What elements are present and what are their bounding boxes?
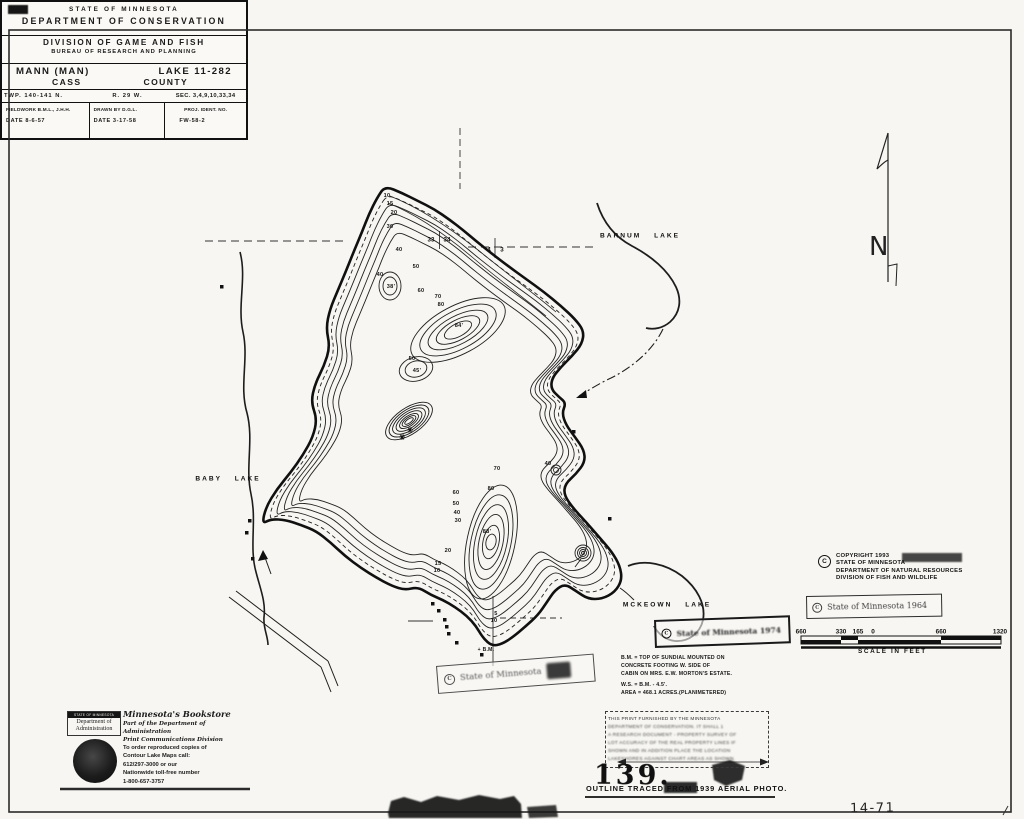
spring-symbols [399, 427, 413, 440]
structure-symbols [220, 285, 612, 657]
bookstore-line: 1-800-657-3757 [123, 778, 253, 786]
note-line: W.S. = B.M. - 4.5'. [621, 682, 767, 690]
stamp-text: State of Minnesota 1964 [827, 601, 927, 612]
stamp-1964: C State of Minnesota 1964 [806, 594, 942, 619]
map-sheet: BARNUM LAKEBABY LAKEMCKEOWN LAKE 333443 … [0, 0, 1024, 819]
copyright-icon: C [818, 555, 831, 568]
outline-traced-note: OUTLINE TRACED FROM 1939 AERIAL PHOTO. [586, 784, 787, 793]
south-basin-rings [455, 480, 526, 603]
map-linework [0, 0, 1024, 819]
note-line: CABIN ON MRS. E.W. MORTON'S ESTATE. [621, 671, 767, 679]
stamp-line: SHOWN AND IN ADDITION PLACE THE LOCATION [608, 747, 766, 755]
note-line: CONCRETE FOOTING W. SIDE OF [621, 663, 767, 671]
north-arrow [877, 133, 897, 286]
scale-bar-graphic [801, 636, 1001, 648]
copyright-icon: C [661, 628, 671, 638]
copyright-icon: C [812, 602, 822, 612]
handwritten-number: 14-71 [850, 801, 896, 817]
road [229, 591, 338, 692]
bookstore-line: Nationwide toll-free number [123, 769, 253, 777]
copyright-icon: C [444, 673, 456, 685]
admin-header-dept: Department of Administration [68, 718, 120, 735]
stamp-1974: C State of Minnesota 1974 [654, 615, 791, 648]
north-label: N [869, 232, 888, 262]
bookstore-line: To order reproduced copies of [123, 744, 253, 752]
stamp-line: LOT ACCURACY OF THE REAL PROPERTY LINES … [608, 739, 766, 747]
barnum-inlet-stream [579, 329, 663, 396]
benchmark-note: B.M. = TOP OF SUNDIAL MOUNTED ONCONCRETE… [621, 655, 767, 698]
ink-smudge [546, 661, 571, 679]
north-basin-rings [401, 284, 515, 375]
note-line: B.M. = TOP OF SUNDIAL MOUNTED ON [621, 655, 767, 663]
inlet-arrowhead [576, 390, 587, 398]
bookstore-line: Print Communications Division [123, 736, 253, 744]
stamp-text: State of Minnesota 1974 [676, 625, 781, 638]
sheet-frame [9, 30, 1011, 812]
copyright-line: DIVISION OF FISH AND WILDLIFE [836, 575, 963, 582]
copyright-line: DEPARTMENT OF NATURAL RESOURCES [836, 568, 963, 575]
copyright-line: STATE OF MINNESOTA [836, 560, 963, 567]
scan-artifact [8, 5, 28, 14]
stamp-text: State of Minnesota [460, 667, 542, 683]
admin-header-box: STATE OF MINNESOTA Department of Adminis… [67, 711, 121, 736]
stamp-line: DEPARTMENT OF CONSERVATION. IT SHALL 1 [608, 723, 766, 731]
scale-caption: SCALE IN FEET [858, 648, 927, 655]
hump-rings [379, 272, 591, 567]
state-seal-icon [73, 739, 117, 783]
copyright-block: COPYRIGHT 1993STATE OF MINNESOTADEPARTME… [836, 553, 963, 582]
note-line: AREA = 468.1 ACRES.(PLANIMETERED) [621, 690, 767, 698]
neighbor-water-features [229, 203, 704, 692]
bookstore-text: Minnesota's BookstorePart of the Departm… [123, 709, 253, 786]
barnum-lake-shore [597, 203, 679, 329]
steep-hole-rings [379, 395, 438, 447]
lake-depth-contours [263, 188, 621, 645]
bookstore-line: 612/297-3000 or our [123, 761, 253, 769]
bookstore-line: Part of the Department of Administration [123, 720, 253, 736]
copyright-line: COPYRIGHT 1993 [836, 553, 963, 560]
scan-tick [1003, 806, 1008, 815]
stamp-line: THIS PRINT FURNISHED BY THE MINNESOTA [608, 715, 766, 723]
stamp-line: A RESEARCH DOCUMENT - PROPERTY SURVEY OF [608, 731, 766, 739]
bookstore-line: Contour Lake Maps call: [123, 752, 253, 760]
baby-lake-shore [240, 252, 268, 645]
bookstore-line: Minnesota's Bookstore [123, 709, 253, 719]
bookstore-block: STATE OF MINNESOTA Department of Adminis… [66, 708, 256, 793]
